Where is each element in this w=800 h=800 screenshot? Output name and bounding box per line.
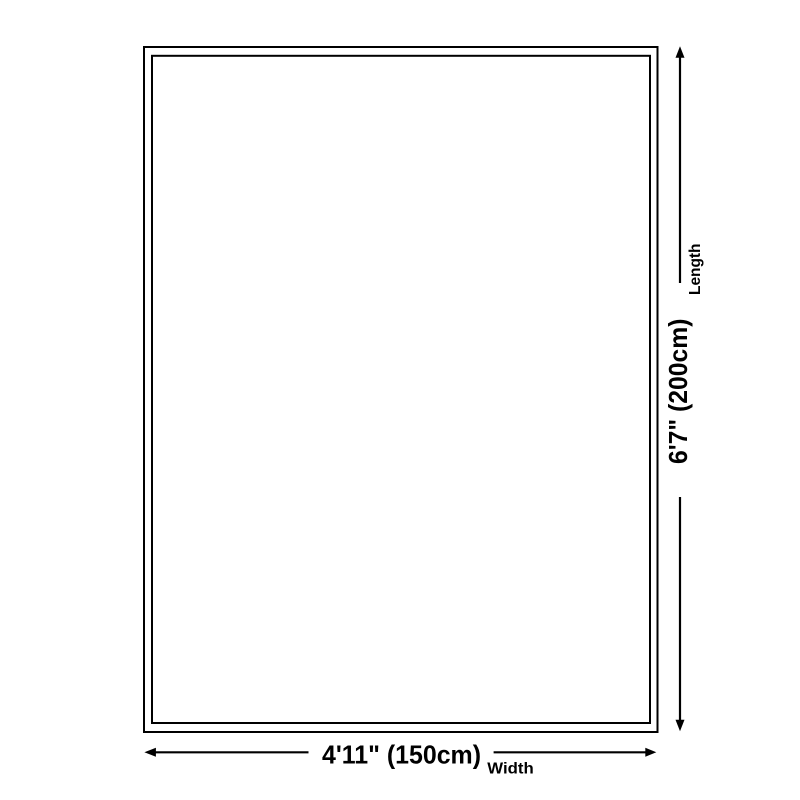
svg-text:6'7" (200cm): 6'7" (200cm) bbox=[663, 319, 693, 465]
svg-text:Length: Length bbox=[687, 244, 704, 296]
svg-text:4'11" (150cm): 4'11" (150cm) bbox=[322, 739, 481, 769]
svg-text:Width: Width bbox=[487, 761, 533, 778]
